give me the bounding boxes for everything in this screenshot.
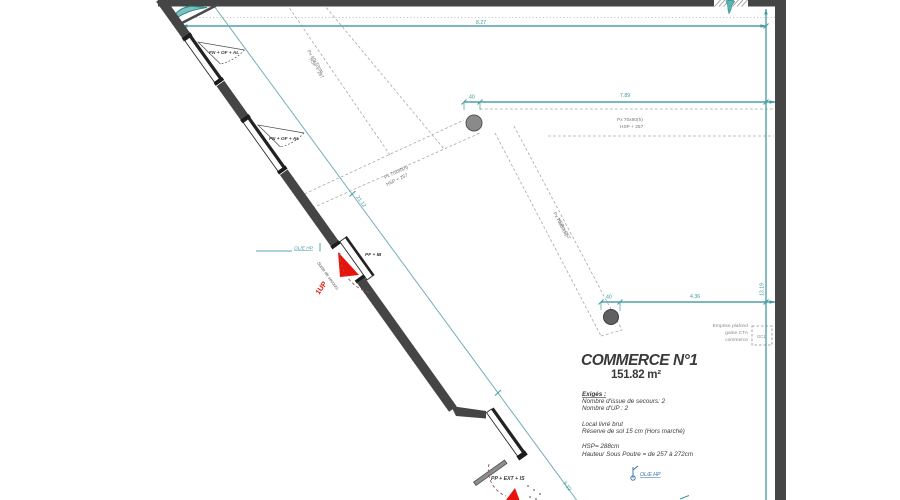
svg-text:151.82 m²: 151.82 m² (611, 369, 661, 381)
svg-text:OL/E HP: OL/E HP (640, 472, 661, 478)
svg-text:40: 40 (469, 95, 475, 101)
svg-text:4.36: 4.36 (690, 294, 700, 300)
svg-text:HSP + 257: HSP + 257 (620, 124, 644, 130)
svg-text:FN + OF + AL: FN + OF + AL (269, 136, 299, 142)
svg-text:8.27: 8.27 (476, 20, 486, 26)
svg-text:COMMERCE N°1: COMMERCE N°1 (581, 352, 697, 369)
svg-text:Px 70x80(h): Px 70x80(h) (617, 117, 643, 123)
svg-text:Réserve de sol 15 cm (Hors mar: Réserve de sol 15 cm (Hors marché) (582, 428, 685, 435)
svg-text:Nombre d'issue de secours: 2: Nombre d'issue de secours: 2 (582, 398, 666, 405)
svg-text:40: 40 (606, 295, 612, 301)
svg-text:PP + EXT + IS: PP + EXT + IS (491, 476, 525, 482)
svg-text:Hauteur Sous Poutre = de 257 à: Hauteur Sous Poutre = de 257 à 272cm (582, 451, 693, 458)
svg-text:commerce: commerce (725, 337, 748, 343)
svg-text:Exigés :: Exigés : (582, 391, 606, 398)
svg-text:7.89: 7.89 (620, 93, 630, 99)
svg-text:Nombre d'UP : 2: Nombre d'UP : 2 (582, 405, 629, 412)
svg-text:HSP= 288cm: HSP= 288cm (582, 443, 619, 450)
svg-text:FN + OF + AL: FN + OF + AL (209, 50, 239, 56)
svg-text:Local livré brut: Local livré brut (582, 421, 623, 428)
svg-text:OL/E HP: OL/E HP (294, 246, 314, 252)
svg-text:gaine CTA: gaine CTA (725, 330, 748, 336)
svg-text:13.19: 13.19 (760, 283, 766, 296)
svg-text:PF + IB: PF + IB (365, 252, 382, 258)
svg-text:Emprise plafond: Emprise plafond (713, 323, 749, 329)
svg-text:GC1: GC1 (757, 334, 766, 339)
